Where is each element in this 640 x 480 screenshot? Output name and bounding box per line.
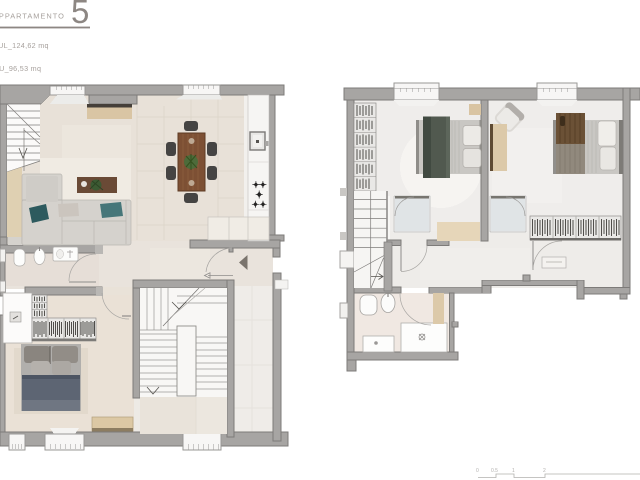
svg-text:SU_96,53 mq: SU_96,53 mq — [0, 64, 41, 73]
svg-text:2: 2 — [543, 468, 546, 474]
svg-text:5: 5 — [71, 0, 89, 30]
svg-text:SUL_124,62 mq: SUL_124,62 mq — [0, 41, 49, 50]
svg-text:0: 0 — [476, 468, 479, 474]
svg-text:1: 1 — [512, 468, 515, 474]
svg-text:0.5: 0.5 — [491, 468, 498, 474]
svg-text:APPARTAMENTO: APPARTAMENTO — [0, 12, 65, 21]
